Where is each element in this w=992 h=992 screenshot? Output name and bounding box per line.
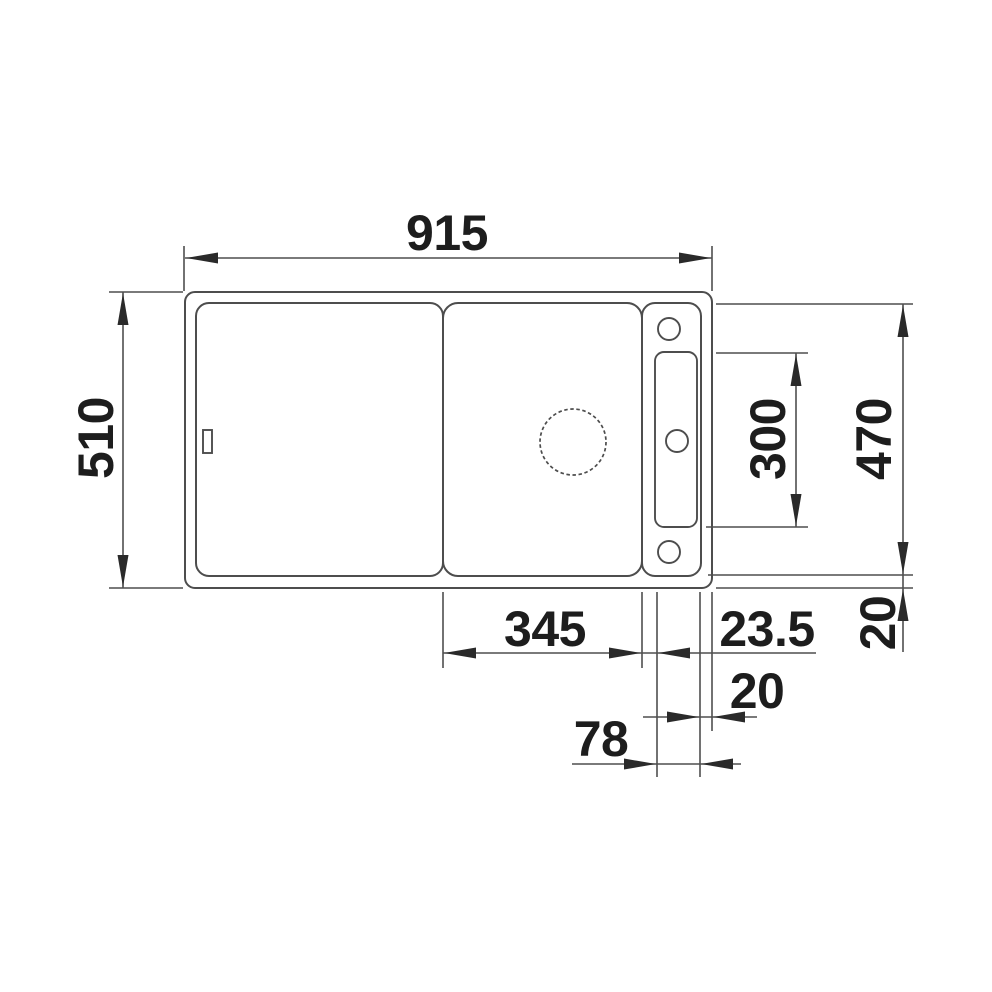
dim-label-inner-depth: 470 xyxy=(846,398,902,480)
dim-label-overall-depth: 510 xyxy=(68,397,124,479)
sink-outer-outline xyxy=(185,292,712,588)
arrowhead-bottom xyxy=(118,555,129,587)
dim-label-rail-slot-length: 300 xyxy=(740,398,796,480)
dim-label-rail-width: 78 xyxy=(574,711,629,767)
arrowhead-top xyxy=(898,305,909,337)
dim-overall-width: 915 xyxy=(184,205,712,291)
tap-hole-middle xyxy=(666,430,688,452)
arrowhead-inward-left xyxy=(624,759,656,770)
tray-slot-outline xyxy=(655,352,697,527)
arrowhead-top xyxy=(791,354,802,386)
arrowhead-top xyxy=(118,293,129,325)
bowl-outline xyxy=(443,303,642,576)
technical-drawing-canvas: 915 510 470 300 xyxy=(0,0,992,992)
dim-overall-depth: 510 xyxy=(68,292,183,588)
dim-label-bowl-width: 345 xyxy=(504,601,586,657)
arrowhead-right xyxy=(679,253,711,264)
sink-dimension-drawing: 915 510 470 300 xyxy=(0,0,992,992)
arrowhead-left xyxy=(186,253,218,264)
arrowhead-left xyxy=(444,648,476,659)
dim-label-bowl-rail-gap: 23.5 xyxy=(719,601,814,657)
arrowhead-inward-left xyxy=(667,712,699,723)
dim-label-rim-bottom: 20 xyxy=(850,596,906,651)
arrowhead-gap xyxy=(658,648,690,659)
arrowhead-inward-right xyxy=(701,759,733,770)
accessory-clip-mark xyxy=(203,430,212,453)
arrowhead-bottom xyxy=(791,494,802,526)
drain-hole xyxy=(540,409,606,475)
dim-inner-depth: 470 xyxy=(708,304,913,575)
arrowhead-right xyxy=(609,648,641,659)
sink-plan-view xyxy=(185,292,712,588)
drainboard-outline xyxy=(196,303,443,576)
tap-hole-top xyxy=(658,318,680,340)
accessory-rail-outline xyxy=(642,303,701,576)
arrowhead-bottom xyxy=(898,542,909,574)
tap-hole-bottom xyxy=(658,541,680,563)
dim-label-rim-right: 20 xyxy=(730,663,785,719)
dim-rail-slot-length: 300 xyxy=(706,353,808,527)
dim-label-overall-width: 915 xyxy=(406,205,488,261)
